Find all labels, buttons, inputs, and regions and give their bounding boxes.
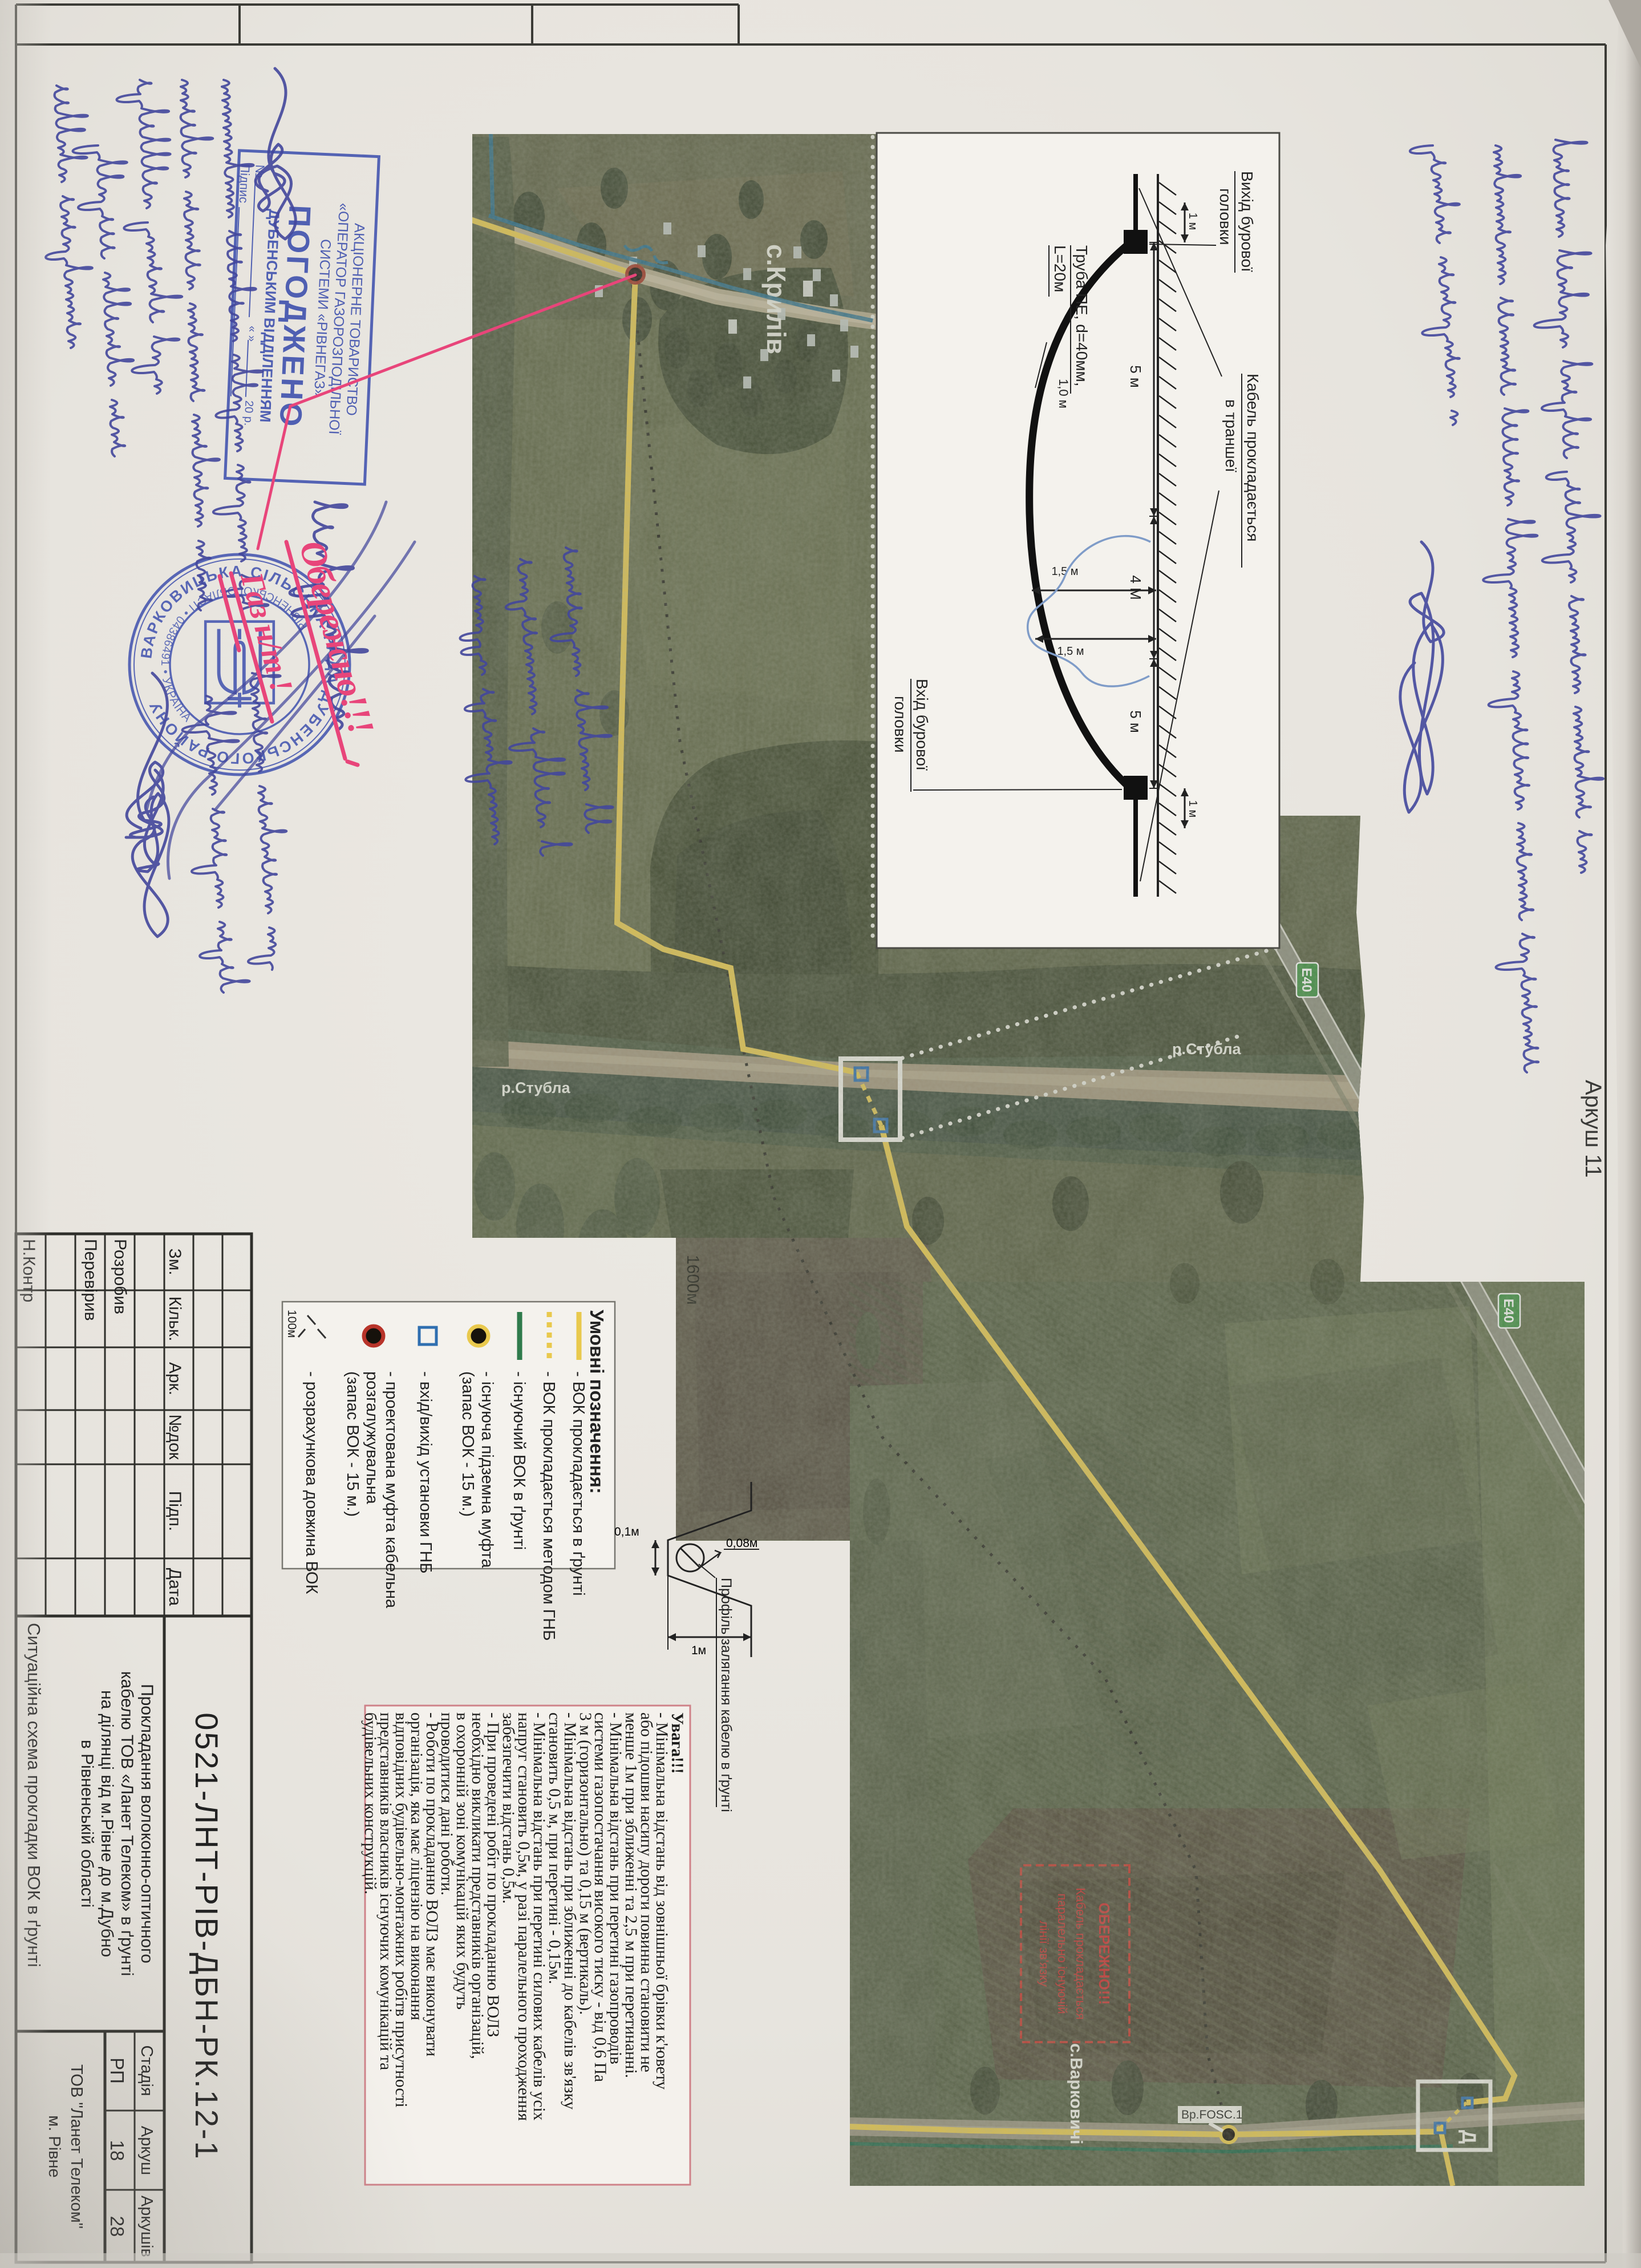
- svg-text:Підпис: Підпис: [237, 164, 253, 204]
- svg-text:Вихід бурової: Вихід бурової: [1238, 171, 1256, 272]
- svg-text:Вхід бурової: Вхід бурової: [913, 679, 931, 771]
- svg-text:Зм.: Зм.: [165, 1248, 184, 1275]
- svg-text:4 М: 4 М: [1127, 575, 1144, 600]
- svg-text:L=20м: L=20м: [1051, 245, 1069, 292]
- svg-text:№док: №док: [165, 1414, 184, 1460]
- svg-text:20 р.: 20 р.: [242, 400, 256, 426]
- svg-text:Розробив: Розробив: [111, 1239, 129, 1314]
- svg-text:1,5 м: 1,5 м: [1057, 645, 1084, 658]
- svg-text:Умовні позначення:: Умовні позначення:: [586, 1310, 607, 1494]
- svg-text:Аркуш 11: Аркуш 11: [1581, 1080, 1606, 1178]
- svg-text:в траншеї: в траншеї: [1222, 399, 1240, 472]
- svg-text:5 м: 5 м: [1127, 365, 1144, 388]
- svg-text:головки: головки: [1217, 188, 1234, 245]
- svg-text:Труба ПЕ, d=40мм,: Труба ПЕ, d=40мм,: [1073, 245, 1091, 387]
- svg-text:Кабель прокладається: Кабель прокладається: [1244, 374, 1262, 542]
- svg-text:Кільк.: Кільк.: [165, 1297, 184, 1342]
- svg-text:1,0 м: 1,0 м: [1056, 379, 1071, 408]
- svg-text:1 м: 1 м: [1186, 800, 1199, 817]
- svg-text:5 м: 5 м: [1127, 710, 1144, 733]
- svg-text:1 м: 1 м: [1186, 213, 1199, 230]
- svg-text:« »: « »: [245, 326, 258, 342]
- svg-text:100м: 100м: [285, 1310, 298, 1338]
- svg-text:Арк.: Арк.: [165, 1362, 184, 1395]
- svg-text:головки: головки: [892, 696, 909, 753]
- svg-text:Перевірив: Перевірив: [81, 1239, 100, 1321]
